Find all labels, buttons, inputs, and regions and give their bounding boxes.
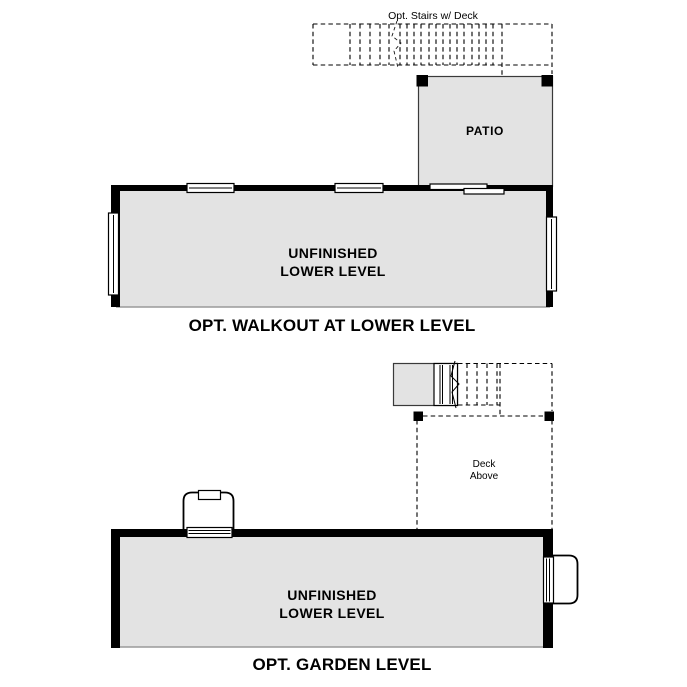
- garden-plan: Deck Above UNFINISHED LOWER LE: [111, 361, 578, 674]
- patio-post-left: [417, 75, 429, 87]
- deck-label-line2: Above: [470, 471, 499, 482]
- garden-window-top: [187, 528, 232, 538]
- window-left: [109, 213, 119, 295]
- walkout-room-label-line2: LOWER LEVEL: [280, 263, 386, 279]
- walkout-plan: Opt. Stairs w/ Deck PATIO: [109, 10, 557, 335]
- deck-post-left: [414, 412, 424, 422]
- stair-symbol: [434, 361, 459, 408]
- floorplan-sheet: Opt. Stairs w/ Deck PATIO: [0, 0, 687, 687]
- window-top-2: [335, 184, 383, 193]
- optional-stairs-outline: [313, 21, 552, 75]
- garden-plan-title: OPT. GARDEN LEVEL: [252, 655, 431, 674]
- garden-wall-left: [111, 529, 120, 648]
- window-top-1: [187, 184, 234, 193]
- deck-label-line1: Deck: [473, 459, 497, 470]
- window-well-top: [184, 491, 234, 533]
- garden-room-label-line1: UNFINISHED: [287, 587, 377, 603]
- walkout-plan-title: OPT. WALKOUT AT LOWER LEVEL: [189, 316, 476, 335]
- window-right: [547, 217, 557, 291]
- window-well-right: [551, 556, 578, 604]
- stairs-label: Opt. Stairs w/ Deck: [388, 10, 479, 22]
- garden-room-label-line2: LOWER LEVEL: [279, 605, 385, 621]
- walkout-room-label-line1: UNFINISHED: [288, 245, 378, 261]
- patio-post-right: [542, 75, 554, 87]
- garden-wall-top: [111, 529, 553, 537]
- deck-post-right: [545, 412, 555, 422]
- floorplan-drawing: Opt. Stairs w/ Deck PATIO: [0, 0, 687, 687]
- patio-label: PATIO: [466, 124, 504, 138]
- garden-window-right: [544, 557, 554, 603]
